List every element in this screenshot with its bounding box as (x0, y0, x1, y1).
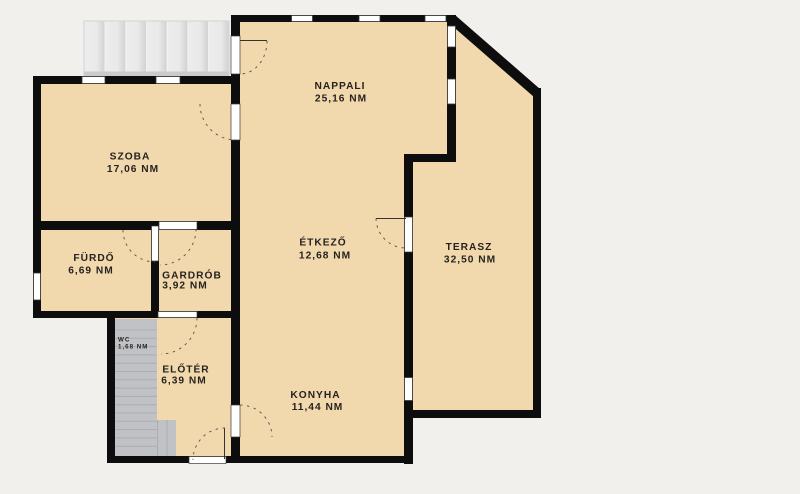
svg-text:ELŐTÉR: ELŐTÉR (162, 363, 209, 376)
svg-text:17,06 NM: 17,06 NM (107, 164, 159, 175)
svg-text:ÉTKEZŐ: ÉTKEZŐ (299, 236, 346, 249)
svg-text:TERASZ: TERASZ (446, 242, 493, 253)
svg-text:KONYHA: KONYHA (290, 390, 340, 401)
svg-text:FÜRDŐ: FÜRDŐ (73, 251, 114, 264)
svg-text:NAPPALI: NAPPALI (315, 81, 366, 92)
svg-text:3,92 NM: 3,92 NM (162, 281, 208, 292)
svg-text:12,68 NM: 12,68 NM (299, 251, 351, 262)
svg-text:1,68 NM: 1,68 NM (118, 344, 148, 351)
svg-text:25,16 NM: 25,16 NM (315, 94, 367, 105)
svg-text:SZOBA: SZOBA (110, 152, 151, 163)
svg-text:6,69 NM: 6,69 NM (68, 266, 114, 277)
svg-text:32,50 NM: 32,50 NM (444, 255, 496, 266)
svg-text:11,44 NM: 11,44 NM (292, 402, 344, 413)
svg-text:WC: WC (118, 337, 130, 344)
svg-text:6,39 NM: 6,39 NM (161, 376, 207, 387)
